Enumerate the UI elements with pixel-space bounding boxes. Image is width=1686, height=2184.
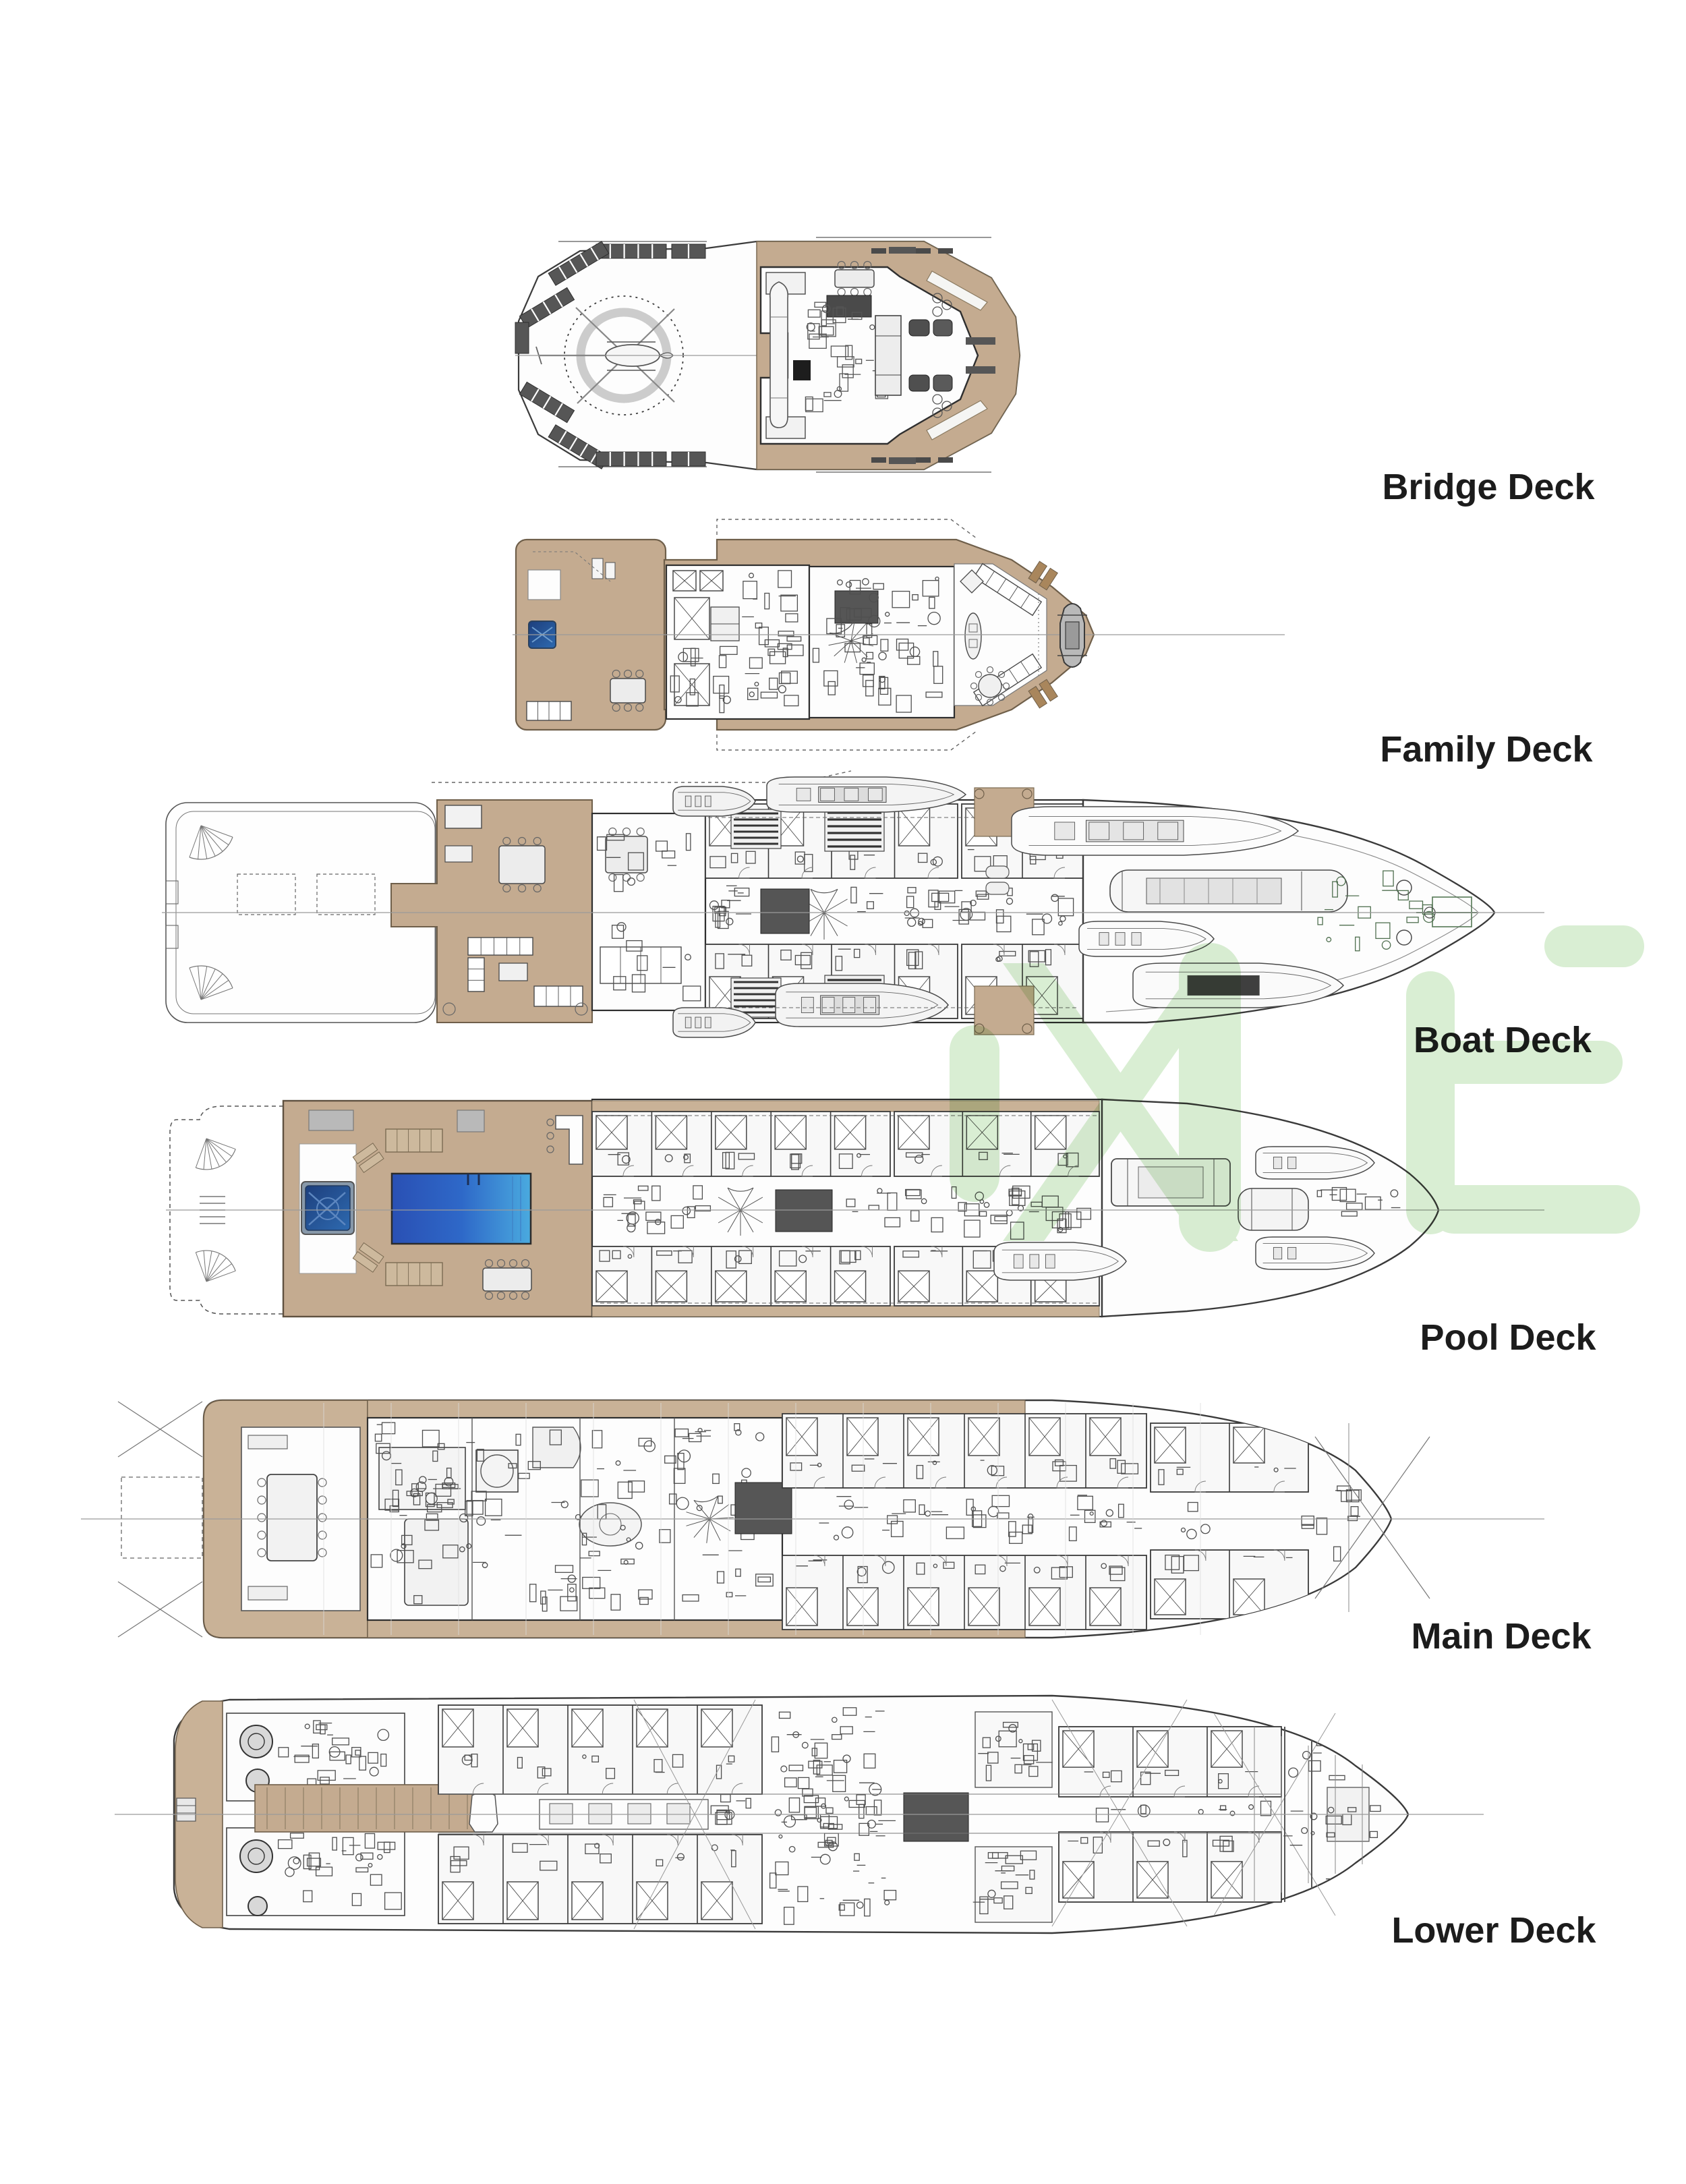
svg-text:Bridge Deck: Bridge Deck [1382, 467, 1595, 507]
svg-text:Pool Deck: Pool Deck [1420, 1317, 1596, 1358]
svg-text:Main Deck: Main Deck [1411, 1616, 1592, 1657]
svg-text:Lower Deck: Lower Deck [1391, 1910, 1596, 1951]
svg-text:Family Deck: Family Deck [1380, 729, 1593, 770]
